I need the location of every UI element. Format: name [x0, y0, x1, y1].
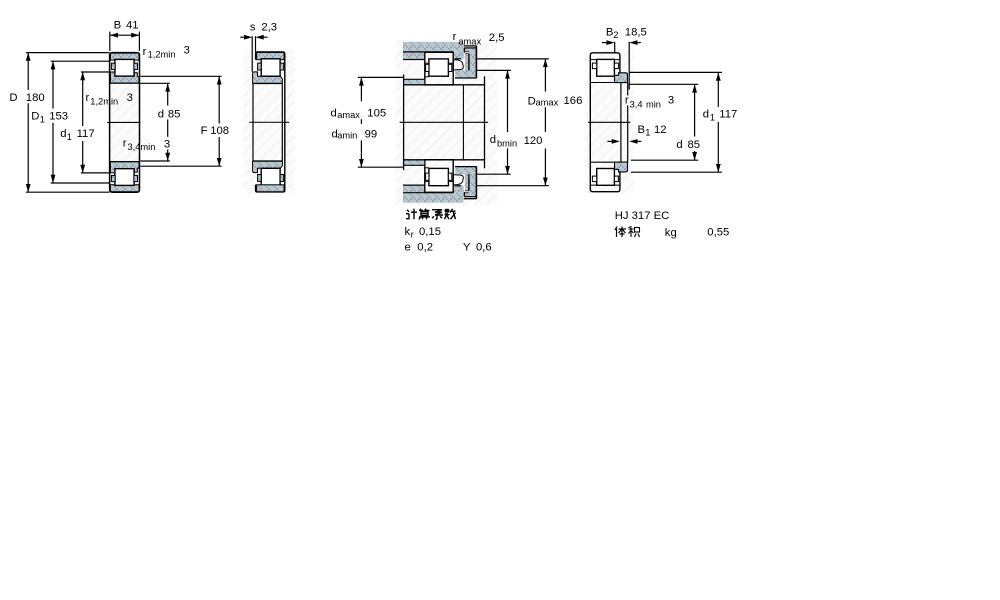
svg-text:3: 3 [127, 92, 133, 104]
svg-text:1: 1 [67, 132, 72, 142]
svg-text:r: r [411, 230, 414, 240]
svg-text:1: 1 [645, 127, 650, 137]
svg-text:41: 41 [126, 19, 139, 31]
svg-text:amin: amin [337, 131, 357, 141]
svg-text:d: d [331, 108, 337, 120]
svg-text:r: r [625, 94, 629, 106]
svg-text:kg: kg [665, 227, 677, 239]
svg-text:166: 166 [564, 95, 583, 107]
svg-text:120: 120 [524, 135, 543, 147]
svg-text:1: 1 [40, 114, 45, 124]
svg-text:3: 3 [668, 94, 674, 106]
svg-text:d: d [676, 139, 682, 151]
svg-text:r: r [453, 31, 457, 43]
svg-text:amax: amax [337, 110, 360, 120]
svg-text:d: d [60, 128, 66, 140]
svg-text:B: B [638, 124, 646, 136]
svg-text:Y: Y [463, 241, 471, 253]
svg-text:HJ 317 EC: HJ 317 EC [615, 210, 670, 222]
svg-text:d: d [158, 108, 164, 120]
svg-text:2,3: 2,3 [261, 22, 277, 34]
svg-text:1,2min: 1,2min [148, 49, 176, 59]
svg-text:99: 99 [365, 128, 378, 140]
svg-text:153: 153 [49, 110, 68, 122]
svg-text:0,2: 0,2 [417, 241, 433, 253]
svg-text:3: 3 [184, 45, 190, 57]
svg-text:amax: amax [458, 37, 481, 47]
svg-text:B: B [114, 19, 122, 31]
svg-text:0,55: 0,55 [707, 227, 729, 239]
svg-text:3: 3 [164, 138, 170, 150]
svg-text:85: 85 [168, 108, 181, 120]
svg-text:180: 180 [26, 92, 45, 104]
svg-text:e: e [405, 241, 411, 253]
svg-text:2: 2 [613, 30, 618, 40]
svg-text:D: D [31, 110, 39, 122]
svg-text:2,5: 2,5 [489, 32, 505, 44]
svg-text:117: 117 [77, 128, 95, 140]
svg-text:1: 1 [710, 112, 715, 122]
svg-text:3,4min: 3,4min [128, 142, 156, 152]
svg-text:3,4: 3,4 [630, 100, 643, 110]
svg-text:r: r [143, 46, 147, 58]
svg-text:F: F [201, 125, 208, 137]
svg-text:105: 105 [367, 107, 386, 119]
svg-text:bmin: bmin [497, 138, 517, 148]
svg-text:D: D [9, 92, 17, 104]
svg-text:min: min [646, 100, 661, 110]
svg-text:1,2min: 1,2min [90, 96, 118, 106]
svg-text:d: d [703, 108, 709, 120]
svg-text:k: k [405, 226, 411, 238]
svg-text:0,15: 0,15 [419, 226, 441, 238]
svg-text:d: d [490, 134, 496, 146]
svg-text:r: r [86, 92, 90, 104]
svg-text:0,6: 0,6 [476, 241, 492, 253]
svg-text:amax: amax [536, 98, 559, 108]
svg-text:18,5: 18,5 [625, 27, 647, 39]
svg-text:117: 117 [719, 108, 737, 120]
svg-text:108: 108 [210, 125, 229, 137]
svg-text:85: 85 [688, 139, 701, 151]
svg-text:12: 12 [654, 124, 667, 136]
svg-text:r: r [123, 138, 127, 150]
svg-text:s: s [250, 22, 256, 34]
